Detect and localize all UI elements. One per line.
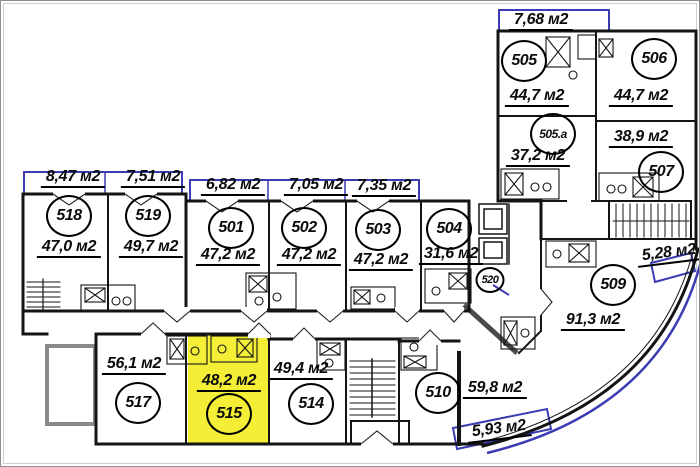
room-506-area-label: 44,7 м2 xyxy=(609,87,673,107)
room-505-badge[interactable]: 505 xyxy=(501,40,547,82)
floor-plan: 8,47 м2 7,51 м2 6,82 м2 7,05 м2 7,35 м2 … xyxy=(0,0,700,467)
room-514-area-label: 49,4 м2 xyxy=(269,360,333,380)
room-514-badge[interactable]: 514 xyxy=(288,383,334,425)
room-501-area-label: 47,2 м2 xyxy=(196,246,260,266)
room-509-badge[interactable]: 509 xyxy=(590,264,636,306)
room-520-badge[interactable]: 520 xyxy=(476,267,505,293)
balcony-area-label-519: 7,51 м2 xyxy=(121,168,185,188)
room-502-badge[interactable]: 502 xyxy=(281,207,327,249)
balcony-area-label-518: 8,47 м2 xyxy=(41,168,105,188)
room-505-area-label: 44,7 м2 xyxy=(505,87,569,107)
room-507-badge[interactable]: 507 xyxy=(638,151,684,193)
room-517-area-label: 56,1 м2 xyxy=(102,355,166,375)
room-515-badge[interactable]: 515 xyxy=(206,393,252,435)
room-518-area-label: 47,0 м2 xyxy=(37,238,101,258)
balcony-area-label-502: 7,05 м2 xyxy=(284,176,348,196)
room-502-area-label: 47,2 м2 xyxy=(277,246,341,266)
room-503-badge[interactable]: 503 xyxy=(355,209,401,251)
room-517-badge[interactable]: 517 xyxy=(115,382,161,424)
room-510-badge[interactable]: 510 xyxy=(415,372,461,414)
room-506-badge[interactable]: 506 xyxy=(631,38,677,80)
room-519-area-label: 49,7 м2 xyxy=(119,238,183,258)
room-504-badge[interactable]: 504 xyxy=(426,208,472,250)
room-503-area-label: 47,2 м2 xyxy=(349,251,413,271)
room-501-badge[interactable]: 501 xyxy=(208,207,254,249)
floorplan-linework xyxy=(1,1,700,467)
balcony-area-label-501: 6,82 м2 xyxy=(201,176,265,196)
room-505a-badge[interactable]: 505.а xyxy=(530,113,576,155)
balcony-area-label-503: 7,35 м2 xyxy=(352,177,416,197)
room-519-badge[interactable]: 519 xyxy=(125,195,171,237)
room-509-area-label: 91,3 м2 xyxy=(561,311,625,331)
room-515-area-label: 48,2 м2 xyxy=(197,372,261,392)
room-518-badge[interactable]: 518 xyxy=(46,195,92,237)
balcony-area-label-505: 7,68 м2 xyxy=(509,11,573,31)
room-507-area-label: 38,9 м2 xyxy=(609,128,673,148)
room-510-area-label: 59,8 м2 xyxy=(463,379,527,399)
